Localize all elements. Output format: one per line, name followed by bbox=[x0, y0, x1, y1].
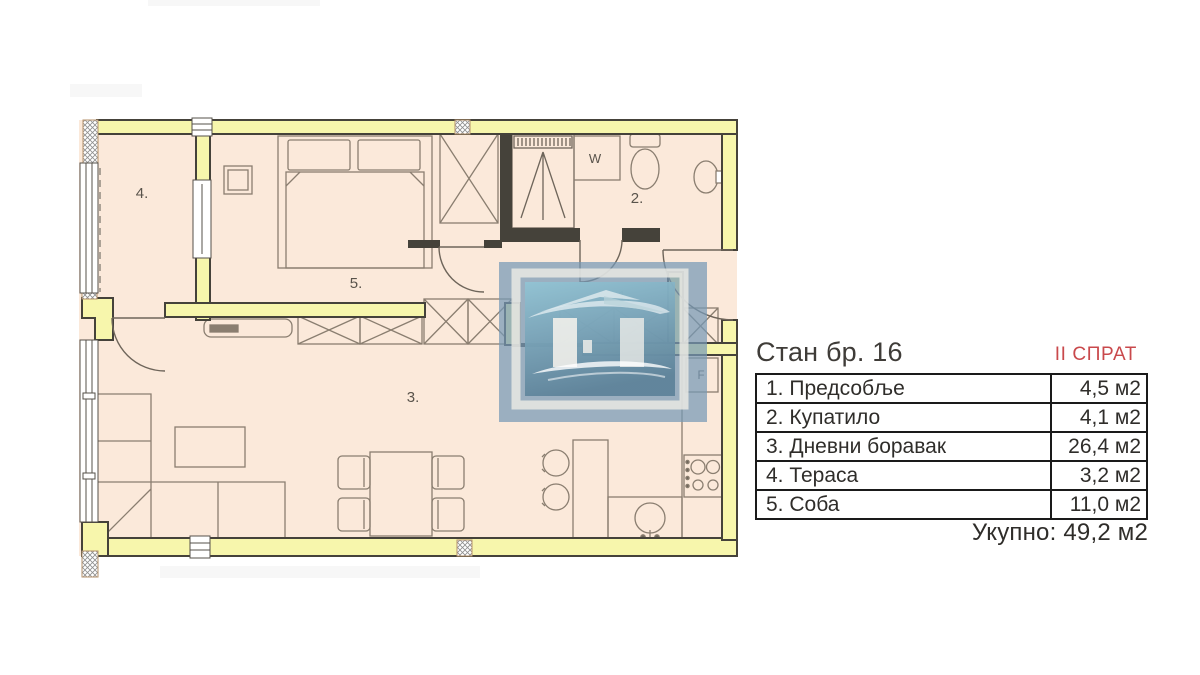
total-label: Укупно: bbox=[972, 519, 1057, 546]
room-label-terrace: 4. bbox=[136, 185, 149, 202]
watermark-logo bbox=[499, 262, 707, 422]
room-name: 1. Предсобље bbox=[757, 377, 1050, 401]
room-label-bedroom: 5. bbox=[350, 275, 363, 292]
table-row: 3. Дневни боравак 26,4 м2 bbox=[757, 433, 1146, 462]
apartment-title: Стан бр. 16 bbox=[756, 337, 903, 368]
room-area: 11,0 м2 bbox=[1050, 491, 1146, 518]
wall-bedroom-living bbox=[165, 303, 425, 317]
window-living bbox=[80, 340, 98, 522]
table-row: 4. Тераса 3,2 м2 bbox=[757, 462, 1146, 491]
total-value: 49,2 м2 bbox=[1063, 519, 1148, 546]
window-terrace bbox=[80, 163, 98, 293]
room-name: 2. Купатило bbox=[757, 406, 1050, 430]
floor-badge: II СПРАТ bbox=[1055, 344, 1137, 366]
floor-plan-drawing: 4. 5. 2. 1. 3. W F bbox=[0, 0, 1200, 675]
room-area: 3,2 м2 bbox=[1050, 462, 1146, 489]
table-row: 1. Предсобље 4,5 м2 bbox=[757, 375, 1146, 404]
room-label-living: 3. bbox=[407, 389, 420, 406]
area-table: 1. Предсобље 4,5 м2 2. Купатило 4,1 м2 3… bbox=[755, 373, 1148, 520]
room-label-bathroom: 2. bbox=[631, 190, 644, 207]
room-area: 26,4 м2 bbox=[1050, 433, 1146, 460]
room-name: 3. Дневни боравак bbox=[757, 435, 1050, 459]
room-area: 4,5 м2 bbox=[1050, 375, 1146, 402]
table-row: 2. Купатило 4,1 м2 bbox=[757, 404, 1146, 433]
logo-inner-square bbox=[525, 282, 675, 396]
room-name: 4. Тераса bbox=[757, 464, 1050, 488]
total-area: Укупно: 49,2 м2 bbox=[972, 519, 1148, 547]
window-bottom bbox=[190, 536, 210, 558]
room-area: 4,1 м2 bbox=[1050, 404, 1146, 431]
wall-right-upper bbox=[722, 134, 737, 250]
floor-plan-page: 4. 5. 2. 1. 3. W F Стан бр. 16 II СПРАТ bbox=[0, 0, 1200, 675]
table-row: 5. Соба 11,0 м2 bbox=[757, 491, 1146, 518]
window-top bbox=[192, 118, 212, 136]
washer-label: W bbox=[589, 151, 602, 166]
room-name: 5. Соба bbox=[757, 493, 1050, 517]
